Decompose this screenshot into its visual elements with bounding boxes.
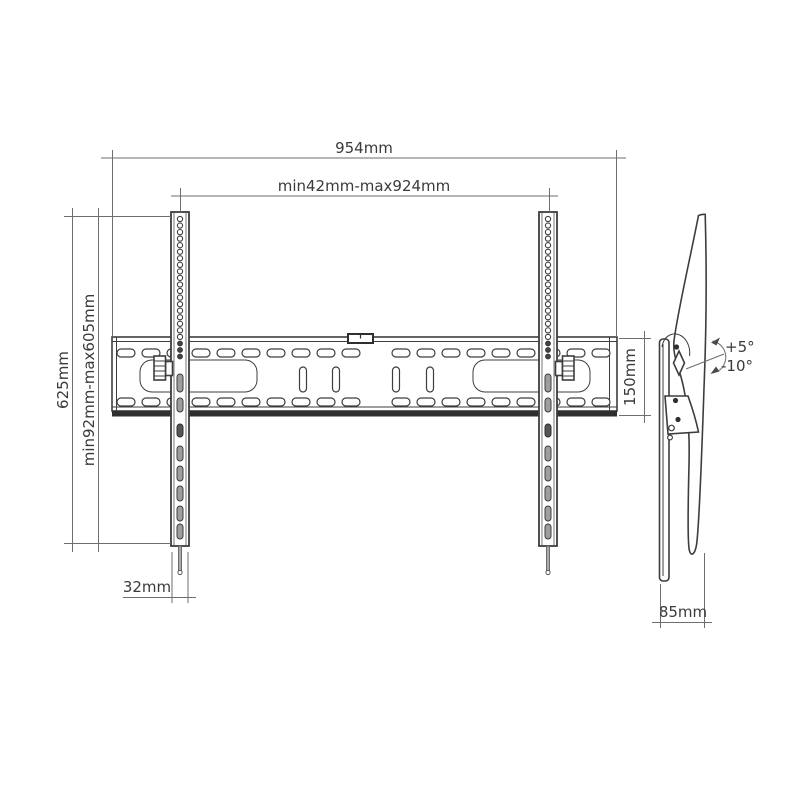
tilt-up-label: +5°	[725, 338, 755, 356]
side-wall-plate	[660, 339, 670, 581]
side-view: +5° -10°	[660, 214, 755, 581]
dim-overall-width-label: 954mm	[335, 139, 393, 157]
dim-profile-depth-label: 85mm	[659, 603, 707, 621]
bubble-level	[348, 334, 373, 343]
dim-hole-pattern-height-label: min92mm-max605mm	[80, 294, 98, 467]
technical-drawing-canvas: 954mm min42mm-max924mm 625mm min92mm-max…	[0, 0, 800, 800]
dim-hole-pattern-width: min42mm-max924mm	[171, 177, 558, 212]
tilt-down-label: -10°	[721, 357, 753, 375]
tilt-arrow-up	[711, 338, 720, 346]
dim-overall-height-label: 625mm	[54, 351, 72, 409]
mount-drawing-svg: 954mm min42mm-max924mm 625mm min92mm-max…	[0, 0, 800, 800]
dim-rail-width-label: 32mm	[123, 578, 171, 596]
dim-hole-pattern-height: min92mm-max605mm	[80, 208, 99, 552]
side-tv-bracket-blade	[674, 214, 706, 554]
tilt-arrow-down	[711, 367, 720, 375]
tv-rail	[171, 212, 189, 575]
dim-hole-pattern-width-label: min42mm-max924mm	[278, 177, 451, 195]
front-view	[112, 212, 617, 575]
dim-rail-width: 32mm	[123, 552, 196, 603]
dim-plate-height: 150mm	[619, 331, 651, 423]
tv-rail	[539, 212, 557, 575]
dim-plate-height-label: 150mm	[621, 348, 639, 406]
